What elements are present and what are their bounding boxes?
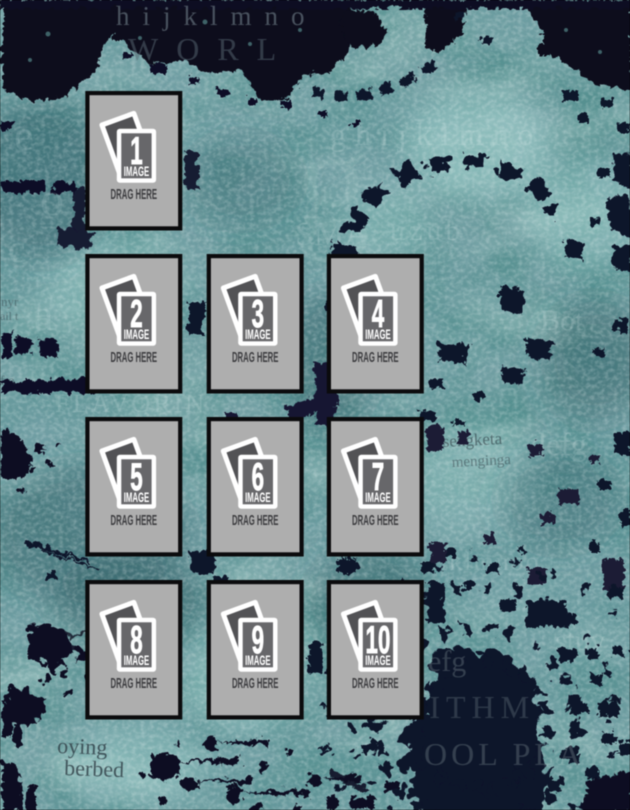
svg-text:DRAG HERE: DRAG HERE <box>111 187 158 203</box>
svg-text:DRAG HERE: DRAG HERE <box>232 676 279 692</box>
svg-text:e: e <box>14 111 34 160</box>
svg-text:IMAGE: IMAGE <box>365 326 391 342</box>
svg-text:IMAGE: IMAGE <box>124 652 150 668</box>
svg-text:berbed: berbed <box>64 755 125 782</box>
svg-text:c: c <box>8 226 26 271</box>
svg-text:iklmnoo: iklmnoo <box>440 547 541 576</box>
svg-text:DRAG HERE: DRAG HERE <box>232 350 279 366</box>
svg-text:IMAGE: IMAGE <box>245 652 271 668</box>
svg-text:IMAGE: IMAGE <box>365 489 391 505</box>
svg-text:uzub: uzub <box>390 214 464 247</box>
svg-text:IMAGE: IMAGE <box>124 326 150 342</box>
svg-text:DRAG HERE: DRAG HERE <box>352 676 399 692</box>
svg-text:DRAG HERE: DRAG HERE <box>232 513 279 529</box>
svg-text:IMAGE: IMAGE <box>124 489 150 505</box>
svg-text:o: o <box>40 173 64 226</box>
svg-text:WORL: WORL <box>128 31 294 67</box>
svg-text:OOL PLAY: OOL PLAY <box>424 736 609 772</box>
svg-text:nyr: nyr <box>1 294 19 309</box>
svg-text:DRAG HERE: DRAG HERE <box>352 350 399 366</box>
svg-text:IMAGE: IMAGE <box>124 163 150 179</box>
svg-text:DRAG HERE: DRAG HERE <box>352 513 399 529</box>
svg-text:hijklmno: hijklmno <box>116 1 318 31</box>
svg-text:DRAG HERE: DRAG HERE <box>111 350 158 366</box>
svg-text:efg: efg <box>428 645 466 678</box>
svg-text:IMAGE: IMAGE <box>245 326 271 342</box>
svg-text:a: a <box>34 291 54 340</box>
svg-text:Bot: Bot <box>540 304 584 337</box>
svg-text:ail t: ail t <box>0 309 19 323</box>
svg-text:DRAG HERE: DRAG HERE <box>111 676 158 692</box>
svg-text:IMAGE: IMAGE <box>365 652 391 668</box>
svg-text:IMAGE: IMAGE <box>245 489 271 505</box>
svg-text:menginga: menginga <box>451 452 511 471</box>
svg-text:sengketa: sengketa <box>442 429 503 451</box>
svg-text:DRAG HERE: DRAG HERE <box>111 513 158 529</box>
